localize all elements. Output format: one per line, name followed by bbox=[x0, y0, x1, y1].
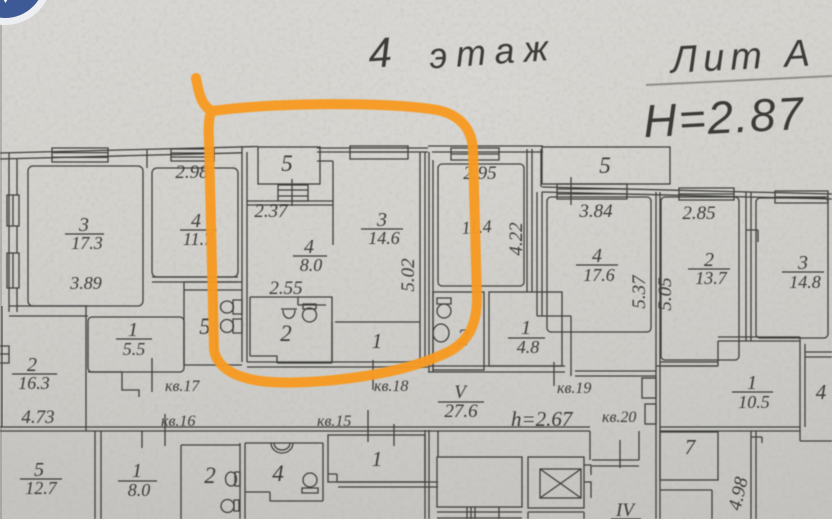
svg-text:кв.20: кв.20 bbox=[602, 409, 636, 426]
svg-text:7: 7 bbox=[685, 435, 697, 459]
svg-text:14.8: 14.8 bbox=[789, 272, 821, 292]
svg-text:IV: IV bbox=[615, 500, 636, 519]
svg-text:Н=2.87: Н=2.87 bbox=[642, 87, 806, 147]
svg-text:кв.19: кв.19 bbox=[557, 380, 591, 397]
svg-text:4: 4 bbox=[367, 28, 394, 77]
svg-text:2.55: 2.55 bbox=[269, 278, 302, 299]
svg-text:5: 5 bbox=[281, 151, 293, 176]
svg-text:4.22: 4.22 bbox=[506, 222, 527, 256]
svg-text:4.8: 4.8 bbox=[517, 337, 540, 357]
svg-text:2.37: 2.37 bbox=[254, 201, 289, 222]
svg-text:2: 2 bbox=[280, 321, 292, 346]
svg-text:1: 1 bbox=[128, 319, 138, 341]
svg-text:3: 3 bbox=[797, 252, 808, 274]
svg-text:5.05: 5.05 bbox=[655, 277, 676, 310]
svg-text:8.0: 8.0 bbox=[128, 480, 151, 500]
svg-text:2: 2 bbox=[204, 463, 216, 488]
svg-text:кв.18: кв.18 bbox=[374, 378, 408, 395]
svg-text:кв.17: кв.17 bbox=[165, 378, 200, 395]
svg-text:3.89: 3.89 bbox=[69, 273, 102, 293]
svg-text:5: 5 bbox=[599, 153, 611, 178]
svg-text:4: 4 bbox=[592, 245, 602, 267]
svg-text:12.7: 12.7 bbox=[25, 478, 58, 498]
svg-text:кв.16: кв.16 bbox=[161, 413, 195, 430]
svg-text:14.6: 14.6 bbox=[368, 228, 400, 248]
svg-text:3.84: 3.84 bbox=[578, 201, 613, 222]
svg-text:2.95: 2.95 bbox=[463, 163, 496, 184]
svg-text:17.6: 17.6 bbox=[583, 265, 615, 285]
svg-text:5.37: 5.37 bbox=[629, 274, 650, 309]
svg-text:кв.15: кв.15 bbox=[317, 413, 351, 430]
svg-text:27.6: 27.6 bbox=[444, 401, 478, 422]
svg-text:Лит А: Лит А bbox=[667, 32, 817, 82]
svg-text:4.73: 4.73 bbox=[21, 407, 54, 428]
svg-text:5.5: 5.5 bbox=[123, 339, 146, 359]
svg-text:17.3: 17.3 bbox=[71, 233, 103, 253]
svg-text:2.98: 2.98 bbox=[175, 162, 209, 183]
svg-text:1: 1 bbox=[521, 317, 531, 339]
svg-text:2.85: 2.85 bbox=[682, 203, 715, 224]
svg-text:1: 1 bbox=[372, 447, 383, 471]
svg-text:10.5: 10.5 bbox=[738, 392, 770, 412]
svg-text:8.0: 8.0 bbox=[300, 255, 323, 275]
svg-text:5.02: 5.02 bbox=[398, 258, 419, 292]
svg-text:1: 1 bbox=[747, 372, 757, 394]
svg-text:13.7: 13.7 bbox=[695, 268, 728, 288]
svg-text:h=2.67: h=2.67 bbox=[511, 407, 574, 431]
svg-text:4: 4 bbox=[272, 461, 284, 486]
svg-text:1: 1 bbox=[132, 460, 142, 482]
svg-text:1: 1 bbox=[372, 329, 383, 353]
svg-text:4: 4 bbox=[816, 380, 827, 404]
svg-text:16.3: 16.3 bbox=[18, 373, 50, 393]
